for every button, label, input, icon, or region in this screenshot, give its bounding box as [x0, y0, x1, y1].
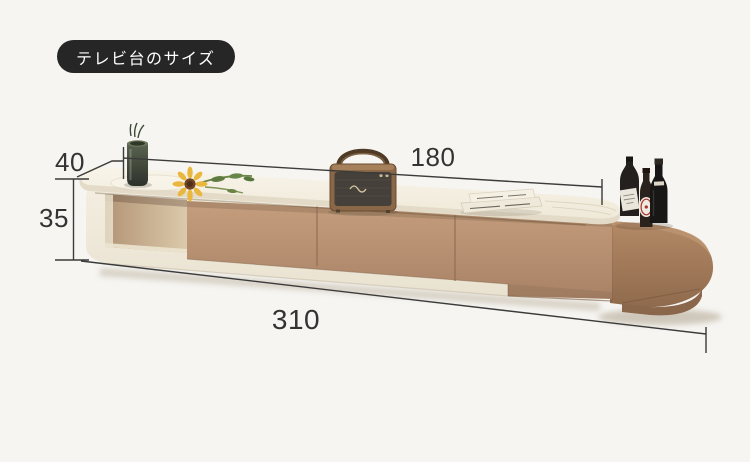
extendable-section	[610, 221, 713, 315]
open-compartment	[105, 194, 187, 253]
dimension-label-total-length: 310	[266, 306, 326, 333]
vase-sprigs	[130, 123, 144, 138]
bottle-right	[650, 159, 668, 224]
product-dimension-diagram: テレビ台のサイズ 40 35 180 310	[0, 0, 750, 462]
dimension-label-height: 35	[32, 205, 76, 232]
radio	[328, 152, 398, 217]
dimension-label-top-length: 180	[405, 144, 461, 171]
size-badge: テレビ台のサイズ	[57, 40, 235, 73]
bottle-left	[619, 157, 639, 217]
dimension-label-depth: 40	[48, 149, 92, 176]
bottles	[615, 157, 673, 231]
